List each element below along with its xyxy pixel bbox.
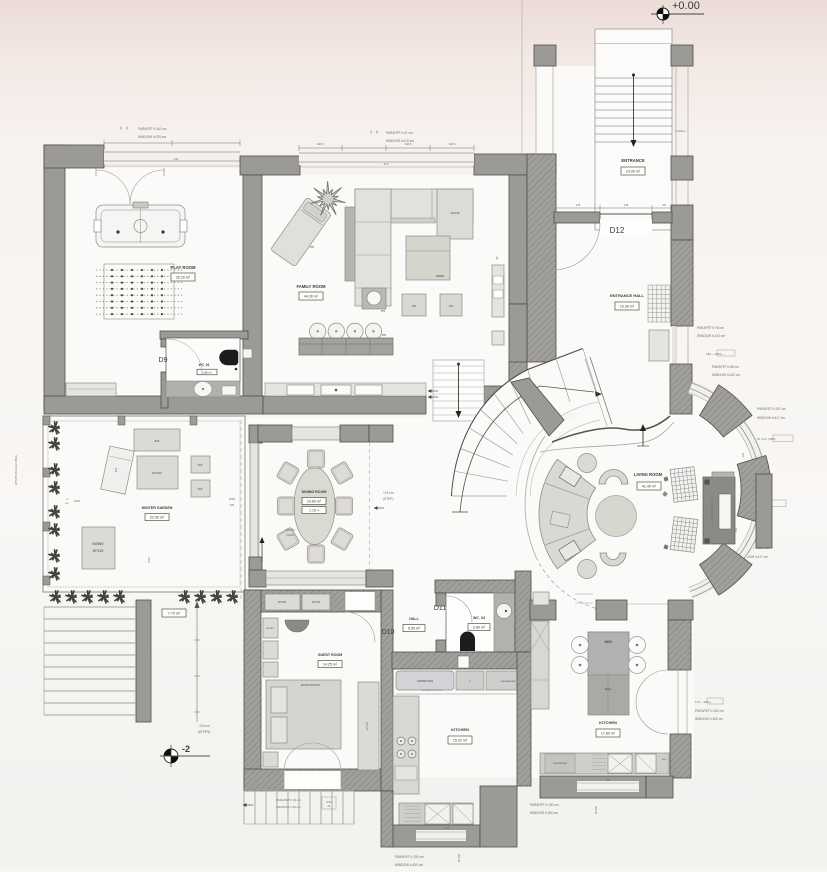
svg-text:140.5: 140.5 — [449, 142, 456, 146]
svg-text:41.40 m²: 41.40 m² — [642, 484, 657, 488]
svg-text:8x8: 8x8 — [198, 463, 203, 467]
svg-text:W22: W22 — [326, 800, 332, 804]
svg-text:90*120: 90*120 — [93, 549, 104, 553]
svg-text:ENTRANCE HALL: ENTRANCE HALL — [610, 293, 645, 298]
svg-text:24*60*8 PorothermBrick: 24*60*8 PorothermBrick — [14, 454, 18, 485]
svg-text:148: 148 — [624, 203, 629, 207]
svg-text:GUEST ROOM: GUEST ROOM — [318, 653, 343, 657]
svg-text:80*120: 80*120 — [152, 471, 162, 475]
svg-text:WINDOW h:210 cm: WINDOW h:210 cm — [386, 139, 414, 143]
svg-text:19.80 m²: 19.80 m² — [307, 499, 322, 503]
svg-text:65*100: 65*100 — [594, 805, 598, 814]
svg-text:D10: D10 — [382, 629, 395, 636]
svg-text:W31: W31 — [147, 557, 151, 563]
svg-text:414: 414 — [383, 162, 388, 166]
svg-text:14.25 m²: 14.25 m² — [323, 662, 338, 666]
svg-text:65*100: 65*100 — [457, 853, 461, 862]
svg-text:island: island — [605, 688, 612, 691]
svg-text:DISHWASHER: DISHWASHER — [501, 680, 516, 683]
svg-text:159: 159 — [606, 778, 611, 782]
svg-text:x+x: x+x — [662, 758, 667, 761]
svg-text:44.30 m²: 44.30 m² — [304, 294, 319, 298]
svg-text:8x9: 8x9 — [155, 439, 160, 443]
svg-text:1920: 1920 — [604, 640, 612, 644]
svg-text:HALL: HALL — [409, 617, 419, 621]
svg-text:22.50 m²: 22.50 m² — [150, 515, 165, 519]
svg-text:D12: D12 — [610, 226, 625, 235]
svg-text:LIVING ROOM: LIVING ROOM — [634, 472, 663, 477]
svg-text:40*120: 40*120 — [312, 600, 321, 604]
svg-text:+15 cm: +15 cm — [383, 491, 394, 495]
svg-text:DINING ROOM: DINING ROOM — [302, 490, 327, 494]
svg-text:40*120: 40*120 — [267, 627, 275, 630]
svg-text:180 —W19—: 180 —W19— — [706, 352, 724, 356]
svg-text:14.90 m²: 14.90 m² — [626, 169, 641, 173]
svg-text:(STEPS): (STEPS) — [198, 730, 211, 734]
svg-text:CONNECTION TYPE: CONNECTION TYPE — [422, 690, 444, 692]
svg-text:1.80 m²: 1.80 m² — [202, 370, 212, 374]
svg-text:ENTRANCE: ENTRANCE — [621, 158, 644, 163]
svg-text:8*8: 8*8 — [412, 304, 416, 308]
svg-text:KITCHEN: KITCHEN — [451, 727, 469, 732]
svg-text:118 -417- (986): 118 -417- (986) — [755, 437, 775, 441]
svg-text:PARAPET h:78 cm: PARAPET h:78 cm — [697, 326, 724, 330]
svg-text:WINDOW 1:20 cm: WINDOW 1:20 cm — [276, 805, 301, 809]
svg-text:WINDOW h:242 cm: WINDOW h:242 cm — [712, 373, 740, 377]
svg-text:-2: -2 — [182, 744, 190, 754]
svg-text:WINDOW h:150 cm: WINDOW h:150 cm — [695, 717, 723, 721]
svg-text:WINDOW h:150 cm: WINDOW h:150 cm — [530, 811, 558, 815]
svg-text:174 —W21—: 174 —W21— — [695, 700, 713, 704]
svg-text:WINDOW h:125 cm: WINDOW h:125 cm — [138, 135, 166, 139]
svg-text:WINDOW h:150 cm: WINDOW h:150 cm — [395, 863, 423, 867]
svg-text:15x15: 15x15 — [436, 274, 444, 278]
svg-text:CONNECTION: CONNECTION — [417, 680, 433, 683]
svg-text:10.30 m²: 10.30 m² — [620, 304, 635, 308]
svg-text:68: 68 — [662, 203, 666, 207]
svg-text:PLAY ROOM: PLAY ROOM — [171, 265, 196, 270]
svg-text:8x8: 8x8 — [198, 487, 203, 491]
svg-text:W25: W25 — [229, 497, 236, 501]
svg-text:133: 133 — [576, 203, 581, 207]
svg-text:FAMILY ROOM: FAMILY ROOM — [296, 284, 326, 289]
svg-text:(STEP): (STEP) — [383, 497, 393, 501]
svg-text:SWING: SWING — [92, 542, 104, 546]
svg-text:8*8: 8*8 — [381, 309, 385, 313]
svg-text:26.20 m²: 26.20 m² — [176, 275, 191, 279]
svg-text:5.50 m²: 5.50 m² — [408, 626, 421, 630]
svg-text:h:146cm: h:146cm — [675, 129, 686, 133]
svg-text:WINDOW h:133 cm: WINDOW h:133 cm — [697, 334, 725, 338]
svg-text:W30: W30 — [74, 499, 81, 503]
svg-text:134: 134 — [174, 157, 179, 161]
svg-text:(05): (05) — [230, 503, 235, 507]
svg-text:17.80 m²: 17.80 m² — [601, 731, 616, 735]
svg-text:80x120: 80x120 — [451, 211, 460, 215]
svg-text:3.50 m²: 3.50 m² — [473, 625, 486, 629]
svg-text:PARAPET h:157 cm: PARAPET h:157 cm — [757, 407, 786, 411]
svg-text:D9: D9 — [159, 357, 168, 364]
svg-text:WINDOW h:417 cm: WINDOW h:417 cm — [757, 416, 785, 420]
svg-text:8*8: 8*8 — [382, 333, 386, 337]
svg-text:PARAPET h:94 cm: PARAPET h:94 cm — [276, 798, 302, 802]
svg-text:WINTER GARDEN: WINTER GARDEN — [142, 506, 173, 510]
svg-text:7.70 m²: 7.70 m² — [168, 611, 181, 615]
svg-text:WC_04: WC_04 — [473, 616, 485, 620]
svg-text:163: 163 — [741, 452, 745, 457]
svg-text:40*120: 40*120 — [278, 600, 287, 604]
svg-text:DISHWASHER: DISHWASHER — [553, 762, 567, 765]
svg-text:8*8: 8*8 — [310, 245, 314, 249]
svg-text:40*120: 40*120 — [365, 721, 369, 730]
svg-text:8*8: 8*8 — [449, 304, 453, 308]
svg-text:15.32 m²: 15.32 m² — [453, 738, 468, 742]
svg-text:+0.00: +0.00 — [672, 0, 700, 12]
svg-text:180*200 RATTAN: 180*200 RATTAN — [300, 684, 319, 687]
svg-text:-124 cm: -124 cm — [198, 724, 210, 728]
svg-text:PARAPET h:100 cm: PARAPET h:100 cm — [695, 709, 724, 713]
svg-text:TABLE: TABLE — [286, 533, 294, 537]
svg-text:KITCHEN: KITCHEN — [599, 720, 617, 725]
svg-text:PARAPET h:100 cm: PARAPET h:100 cm — [530, 803, 559, 807]
svg-text:PARAPET h:110 cm: PARAPET h:110 cm — [138, 127, 167, 131]
svg-text:134: 134 — [445, 826, 450, 830]
svg-text:PARAPET h:56 cm: PARAPET h:56 cm — [712, 365, 739, 369]
svg-text:8x9: 8x9 — [114, 467, 118, 472]
svg-text:140.5: 140.5 — [317, 142, 324, 146]
svg-text:1.10 ×: 1.10 × — [309, 508, 319, 512]
svg-text:PARAPET h:21 cm: PARAPET h:21 cm — [386, 131, 413, 135]
svg-text:PARAPET h:100 cm: PARAPET h:100 cm — [395, 855, 424, 859]
svg-text:150/240: 150/240 — [285, 528, 295, 532]
svg-text:WOOD FIREPLACE: WOOD FIREPLACE — [710, 499, 714, 523]
